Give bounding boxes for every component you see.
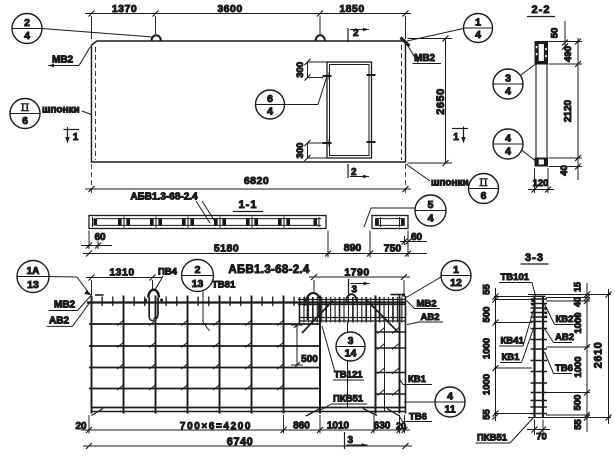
- svg-text:ТВ81: ТВ81: [212, 280, 236, 291]
- svg-text:6: 6: [267, 93, 273, 105]
- svg-text:490: 490: [563, 46, 574, 62]
- svg-text:15: 15: [573, 282, 583, 292]
- svg-text:1: 1: [453, 264, 459, 276]
- svg-text:ТВ6: ТВ6: [555, 363, 573, 374]
- svg-text:1000: 1000: [573, 356, 584, 377]
- svg-text:750: 750: [384, 243, 402, 255]
- svg-text:60: 60: [94, 232, 106, 243]
- svg-text:2: 2: [24, 17, 30, 29]
- svg-text:3: 3: [348, 435, 354, 446]
- svg-text:4: 4: [267, 106, 273, 118]
- svg-text:1790: 1790: [344, 266, 369, 278]
- svg-text:1310: 1310: [109, 266, 134, 278]
- svg-text:ТВ6: ТВ6: [409, 412, 427, 423]
- svg-text:ТВ121: ТВ121: [334, 370, 363, 381]
- svg-text:60: 60: [411, 232, 423, 243]
- svg-text:860: 860: [293, 421, 310, 432]
- svg-text:50: 50: [550, 28, 561, 39]
- svg-text:3: 3: [505, 73, 511, 85]
- svg-text:КВ1: КВ1: [408, 374, 427, 385]
- svg-text:4: 4: [505, 133, 511, 145]
- svg-text:1: 1: [73, 132, 79, 143]
- svg-text:АБВ1.3-68-2.4: АБВ1.3-68-2.4: [228, 264, 310, 276]
- svg-text:40: 40: [573, 297, 583, 307]
- svg-text:630: 630: [374, 421, 391, 432]
- svg-text:2: 2: [195, 264, 201, 276]
- svg-text:КВ41: КВ41: [501, 336, 525, 347]
- svg-text:4: 4: [505, 146, 511, 158]
- svg-text:20: 20: [75, 421, 87, 432]
- svg-text:20: 20: [396, 421, 406, 431]
- svg-text:ПКВ51: ПКВ51: [477, 433, 508, 444]
- svg-text:шпонки: шпонки: [42, 105, 80, 116]
- svg-text:МВ2: МВ2: [52, 55, 74, 66]
- svg-text:13: 13: [27, 279, 39, 291]
- svg-text:2650: 2650: [435, 88, 447, 114]
- svg-text:700×6=4200: 700×6=4200: [180, 421, 252, 432]
- svg-text:АВ2: АВ2: [49, 316, 69, 327]
- svg-text:55: 55: [482, 409, 493, 420]
- svg-text:55: 55: [482, 284, 493, 295]
- svg-text:4: 4: [24, 30, 30, 42]
- svg-text:6: 6: [22, 115, 28, 127]
- svg-text:шпонки: шпонки: [431, 178, 469, 189]
- svg-text:1-1: 1-1: [239, 199, 258, 211]
- svg-text:1000: 1000: [573, 312, 584, 333]
- svg-text:11: 11: [444, 404, 455, 416]
- svg-text:12: 12: [450, 277, 462, 289]
- svg-text:МВ2: МВ2: [417, 299, 437, 310]
- svg-text:3: 3: [352, 285, 358, 296]
- svg-text:6740: 6740: [227, 436, 253, 448]
- svg-text:3-3: 3-3: [525, 252, 544, 264]
- svg-text:3600: 3600: [217, 3, 242, 15]
- svg-text:5: 5: [428, 199, 434, 211]
- svg-text:890: 890: [344, 242, 362, 254]
- svg-text:2-2: 2-2: [532, 4, 551, 16]
- svg-text:500: 500: [482, 307, 493, 323]
- svg-text:120: 120: [533, 178, 549, 189]
- svg-text:55: 55: [573, 419, 584, 430]
- svg-text:500: 500: [573, 395, 584, 411]
- svg-text:АБВ1.3-68-2.4: АБВ1.3-68-2.4: [130, 192, 198, 203]
- svg-text:2610: 2610: [593, 342, 605, 368]
- svg-text:4: 4: [505, 86, 511, 98]
- svg-text:4: 4: [475, 29, 481, 41]
- svg-text:ТВ101: ТВ101: [501, 272, 530, 283]
- svg-text:70: 70: [536, 432, 547, 443]
- svg-text:1850: 1850: [339, 3, 364, 15]
- svg-text:АВ2: АВ2: [421, 312, 440, 323]
- svg-text:14: 14: [345, 348, 357, 360]
- svg-text:1010: 1010: [327, 421, 350, 432]
- svg-text:1: 1: [453, 132, 459, 143]
- svg-text:1000: 1000: [482, 338, 493, 359]
- svg-text:ПКВ51: ПКВ51: [333, 394, 364, 405]
- svg-text:МВ2: МВ2: [414, 53, 436, 64]
- svg-text:300: 300: [295, 62, 306, 78]
- svg-text:1000: 1000: [482, 374, 493, 395]
- svg-text:500: 500: [301, 354, 318, 365]
- svg-text:4: 4: [447, 391, 453, 403]
- svg-text:3: 3: [348, 335, 354, 347]
- svg-text:40: 40: [559, 165, 570, 176]
- svg-text:6: 6: [481, 190, 487, 202]
- svg-text:6820: 6820: [244, 175, 269, 187]
- svg-text:13: 13: [192, 278, 204, 290]
- svg-text:4: 4: [428, 213, 434, 225]
- svg-text:ПВ4: ПВ4: [158, 267, 178, 278]
- svg-text:2120: 2120: [563, 99, 574, 122]
- svg-text:1: 1: [475, 17, 481, 29]
- svg-text:300: 300: [295, 143, 306, 159]
- svg-text:МВ2: МВ2: [54, 300, 76, 311]
- svg-text:1А: 1А: [27, 266, 40, 277]
- svg-text:1370: 1370: [112, 3, 137, 15]
- svg-text:КВ1: КВ1: [502, 352, 521, 363]
- svg-text:5180: 5180: [214, 243, 239, 255]
- svg-text:АВ2: АВ2: [555, 332, 574, 343]
